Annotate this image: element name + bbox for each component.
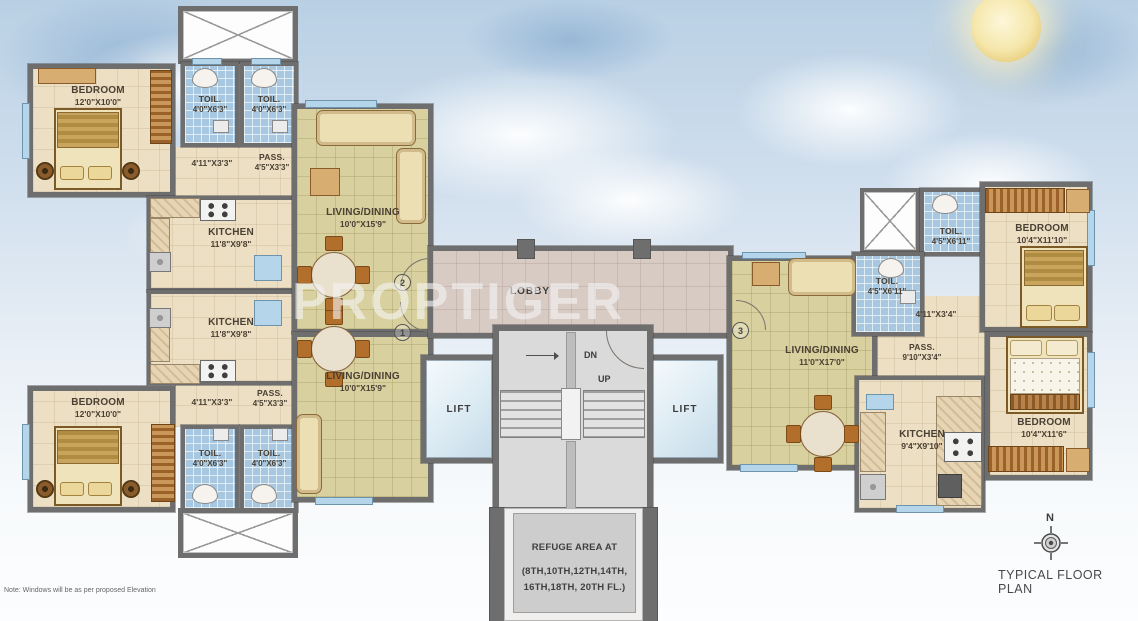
stair-divider-lower xyxy=(567,442,575,508)
toilet-c1-label: TOIL. 4'5"X6'11" xyxy=(918,226,984,247)
tv-unit-living-c xyxy=(752,262,780,286)
bed-a-pillow xyxy=(88,166,112,180)
corridor-b-label: 4'11"X3'3" xyxy=(176,397,248,408)
dresser-bedroom-a xyxy=(38,68,96,84)
room-dims: 12'0"X10'0" xyxy=(52,97,144,108)
refuge-line1: REFUGE AREA AT xyxy=(532,540,617,556)
lift-right: LIFT xyxy=(647,355,723,463)
room-dims: 11'0"X17'0" xyxy=(766,357,878,368)
bed-b-pillow xyxy=(60,482,84,496)
kitchen-a-stove xyxy=(200,199,236,221)
bed-c2-pillow xyxy=(1046,340,1078,356)
refuge-line2: (8TH,10TH,12TH,14TH, xyxy=(522,564,627,580)
corridor-a-label: 4'11"X3'3" xyxy=(176,158,248,169)
side-table-bedroom-a xyxy=(36,162,54,180)
toilet-c2-wc xyxy=(878,258,904,278)
toilet-b2-basin xyxy=(272,428,288,441)
bed-c2-footboard xyxy=(1010,394,1080,410)
dining-table-b xyxy=(311,326,357,372)
living-c-label: LIVING/DINING 11'0"X17'0" xyxy=(766,344,878,368)
room-dims: 4'5"X6'11" xyxy=(852,287,922,297)
room-name: KITCHEN xyxy=(192,316,270,329)
kitchen-a-label: KITCHEN 11'8"X9'8" xyxy=(192,226,270,250)
room-dims: 11'8"X9'8" xyxy=(192,329,270,340)
window-bedroom-c2 xyxy=(1087,352,1095,408)
toilet-a2-basin xyxy=(272,120,288,133)
sofa-living-c xyxy=(788,258,856,296)
lobby-label: LOBBY xyxy=(498,286,562,297)
refuge-area: REFUGE AREA AT (8TH,10TH,12TH,14TH, 16TH… xyxy=(504,508,643,621)
bedroom-a-label: BEDROOM 12'0"X10'0" xyxy=(52,84,144,108)
lift-left-cab: LIFT xyxy=(426,360,492,458)
toilet-a1-basin xyxy=(213,120,229,133)
window-living-b-bottom xyxy=(315,497,373,505)
toilet-b1-label: TOIL. 4'0"X6'3" xyxy=(183,448,237,469)
room-name: BEDROOM xyxy=(1000,416,1088,429)
flat-marker-1: 1 xyxy=(394,324,411,341)
toilet-a1-wc xyxy=(192,68,218,88)
toilet-c1-wc xyxy=(932,194,958,214)
dining-chair xyxy=(325,236,343,251)
room-name: PASS. xyxy=(246,388,294,399)
dining-chair xyxy=(814,395,832,410)
refuge-wall-left xyxy=(490,508,504,621)
room-name: TOIL. xyxy=(183,448,237,459)
flat-marker-2: 2 xyxy=(394,274,411,291)
room-dims: 10'0"X15'9" xyxy=(300,383,426,394)
bed-b-blanket xyxy=(57,430,119,464)
duct-shaft-top xyxy=(178,6,298,64)
bedroom-c1-label: BEDROOM 10'4"X11'10" xyxy=(998,222,1086,246)
toilet-b2-label: TOIL. 4'0"X6'3" xyxy=(242,448,296,469)
bedroom-b-label: BEDROOM 12'0"X10'0" xyxy=(52,396,144,420)
sofa-living-b xyxy=(296,414,322,494)
room-name: TOIL. xyxy=(183,94,237,105)
lift-right-cab: LIFT xyxy=(652,360,718,458)
window-bedroom-c1 xyxy=(1087,210,1095,266)
room-name: BEDROOM xyxy=(52,84,144,97)
toilet-b1-wc xyxy=(192,484,218,504)
bed-a-blanket xyxy=(57,112,119,148)
bed-c1-blanket xyxy=(1024,250,1084,286)
stair-flight-right xyxy=(583,390,645,438)
living-b-label: LIVING/DINING 10'0"X15'9" xyxy=(300,370,426,394)
dn-arrow-icon xyxy=(526,355,556,356)
room-dims: 4'0"X6'3" xyxy=(242,459,296,469)
room-name: BEDROOM xyxy=(52,396,144,409)
stairs-dn-label: DN xyxy=(584,350,597,360)
window-bedroom-a xyxy=(22,103,30,159)
room-name: LIVING/DINING xyxy=(766,344,878,357)
room-dims: 10'4"X11'6" xyxy=(1000,429,1088,440)
bed-c2-sheet xyxy=(1010,358,1080,394)
dining-chair xyxy=(355,340,370,358)
bedroom-c2-label: BEDROOM 10'4"X11'6" xyxy=(1000,416,1088,440)
window-kitchen-c-sq xyxy=(866,394,894,410)
window-kitchen-c-bottom xyxy=(896,505,944,513)
tv-unit-living-a xyxy=(310,168,340,196)
kitchen-a-sink xyxy=(149,252,171,272)
room-dims: 9'4"X9'10" xyxy=(884,441,960,452)
bed-c1-pillow xyxy=(1026,305,1052,321)
lobby-wall-stub-right xyxy=(634,240,650,258)
dining-chair xyxy=(355,266,370,284)
dining-chair xyxy=(814,457,832,472)
dining-chair xyxy=(786,425,801,443)
compass-north-label: N xyxy=(1046,512,1054,524)
room-dims: 4'0"X6'3" xyxy=(183,459,237,469)
dining-chair xyxy=(325,310,343,325)
plan-title: TYPICAL FLOOR PLAN xyxy=(998,568,1138,596)
toilet-a2-wc xyxy=(251,68,277,88)
kitchen-b-sink xyxy=(149,308,171,328)
room-dims: 11'8"X9'8" xyxy=(192,239,270,250)
room-dims: 4'0"X6'3" xyxy=(183,105,237,115)
kitchen-b-label: KITCHEN 11'8"X9'8" xyxy=(192,316,270,340)
bed-b-pillow xyxy=(88,482,112,496)
bed-c2-pillow xyxy=(1010,340,1042,356)
room-name: KITCHEN xyxy=(884,428,960,441)
toilet-b2-wc xyxy=(251,484,277,504)
room-dims: 4'5"X3'3" xyxy=(246,399,294,409)
side-table-bedroom-b xyxy=(122,480,140,498)
kitchen-c-sink xyxy=(860,474,886,500)
toilet-c2-label: TOIL. 4'5"X6'11" xyxy=(852,276,922,297)
dining-table-a xyxy=(311,252,357,298)
pass-a-label: PASS. 4'5"X3'3" xyxy=(248,152,296,173)
desk-bedroom-c2 xyxy=(1066,448,1090,472)
room-dims: 4'5"X3'3" xyxy=(248,163,296,173)
window-living-a-top xyxy=(305,100,377,108)
room-dims: 4'0"X6'3" xyxy=(242,105,296,115)
window-bedroom-b xyxy=(22,424,30,480)
stair-flight-left xyxy=(500,390,562,438)
sofa-living-a xyxy=(316,110,416,146)
room-name: PASS. xyxy=(248,152,296,163)
room-dims: 12'0"X10'0" xyxy=(52,409,144,420)
lobby-wall-stub-left xyxy=(518,240,534,258)
lift-left-label: LIFT xyxy=(446,404,471,415)
kitchen-a-counter-top xyxy=(150,198,200,218)
room-name: BEDROOM xyxy=(998,222,1086,235)
refuge-wall-right xyxy=(643,508,657,621)
lift-right-label: LIFT xyxy=(672,404,697,415)
window-living-c-bottom xyxy=(740,464,798,472)
kitchen-c-counter-left xyxy=(860,412,886,472)
room-dims: 10'0"X15'9" xyxy=(300,219,426,230)
kitchen-c-pad xyxy=(938,474,962,498)
wardrobe-bedroom-c2 xyxy=(988,446,1064,472)
pass-b-label: PASS. 4'5"X3'3" xyxy=(246,388,294,409)
compass-icon xyxy=(1034,526,1068,560)
toilet-a1-label: TOIL. 4'0"X6'3" xyxy=(183,94,237,115)
wardrobe-bedroom-a xyxy=(150,70,172,144)
room-dims: 10'4"X11'10" xyxy=(998,235,1086,246)
wardrobe-bedroom-c1 xyxy=(985,188,1065,213)
stair-divider-upper xyxy=(567,333,575,388)
room-name: TOIL. xyxy=(918,226,984,237)
room-name: PASS. xyxy=(893,342,951,353)
room-name: TOIL. xyxy=(852,276,922,287)
dining-chair xyxy=(297,340,312,358)
dining-chair xyxy=(844,425,859,443)
toilet-b1-basin xyxy=(213,428,229,441)
window-toilet-a2 xyxy=(251,58,281,65)
refuge-line3: 16TH,18TH, 20TH FL.) xyxy=(524,580,626,596)
wardrobe-bedroom-b xyxy=(151,424,175,502)
lift-left: LIFT xyxy=(421,355,497,463)
kitchen-b-stove xyxy=(200,360,236,382)
dining-table-c xyxy=(800,411,846,457)
room-name: LIVING/DINING xyxy=(300,370,426,383)
room-dims: 4'5"X6'11" xyxy=(918,237,984,247)
refuge-text: REFUGE AREA AT (8TH,10TH,12TH,14TH, 16TH… xyxy=(514,514,635,612)
toilet-a2-label: TOIL. 4'0"X6'3" xyxy=(242,94,296,115)
kitchen-b-counter-bottom xyxy=(150,364,200,384)
bed-a-pillow xyxy=(60,166,84,180)
kitchen-c-label: KITCHEN 9'4"X9'10" xyxy=(884,428,960,452)
bed-c1-pillow xyxy=(1054,305,1080,321)
stairs-up-label: UP xyxy=(598,374,611,384)
flat-marker-3: 3 xyxy=(732,322,749,339)
room-name: LIVING/DINING xyxy=(300,206,426,219)
duct-shaft-bottom xyxy=(178,508,298,558)
side-table-bedroom-a xyxy=(122,162,140,180)
living-a-label: LIVING/DINING 10'0"X15'9" xyxy=(300,206,426,230)
duct-shaft-right xyxy=(860,188,920,254)
room-name: TOIL. xyxy=(242,448,296,459)
footer-note: Note: Windows will be as per proposed El… xyxy=(4,587,156,594)
window-toilet-a1 xyxy=(192,58,222,65)
pass-c-label: PASS. 9'10"X3'4" xyxy=(893,342,951,363)
room-name: TOIL. xyxy=(242,94,296,105)
stair-newel xyxy=(561,388,581,440)
side-table-bedroom-b xyxy=(36,480,54,498)
window-kitchen-a-sq xyxy=(254,255,282,281)
corridor-c-label: 4'11"X3'4" xyxy=(898,309,974,320)
cabinet-bedroom-c1 xyxy=(1066,189,1090,213)
room-name: KITCHEN xyxy=(192,226,270,239)
room-dims: 9'10"X3'4" xyxy=(893,353,951,363)
refuge-area-inner: REFUGE AREA AT (8TH,10TH,12TH,14TH, 16TH… xyxy=(513,513,636,613)
dining-chair xyxy=(297,266,312,284)
